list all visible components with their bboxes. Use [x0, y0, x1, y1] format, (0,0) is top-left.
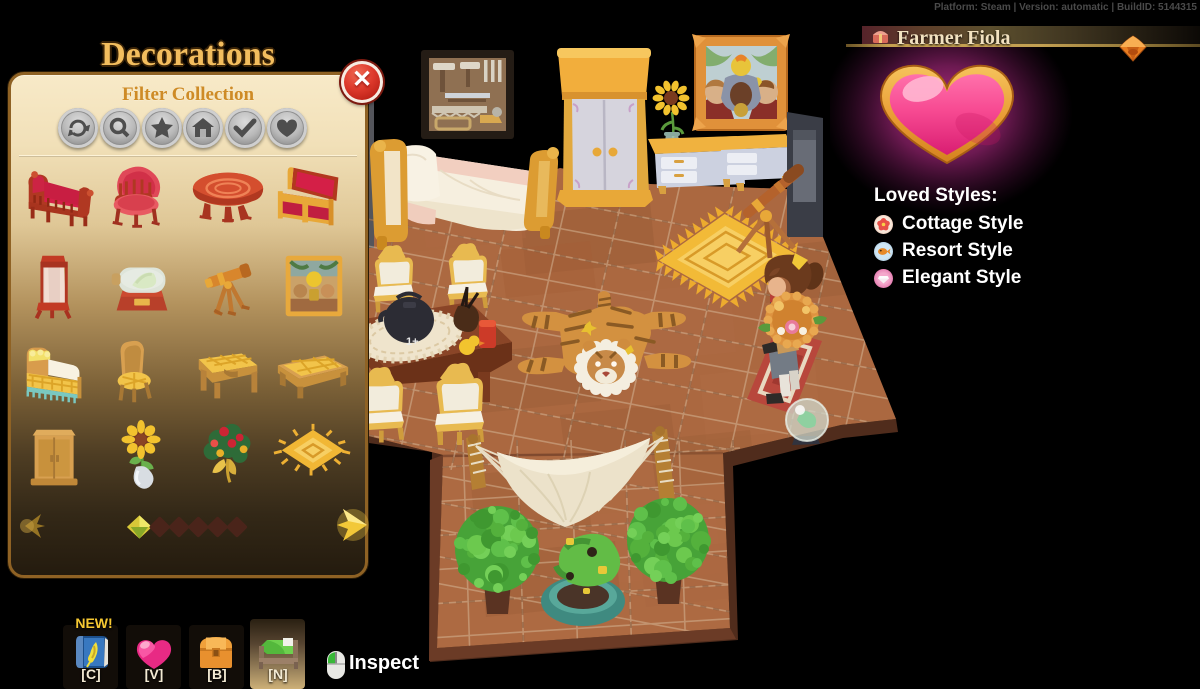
svg-text:1+: 1+: [406, 336, 419, 348]
